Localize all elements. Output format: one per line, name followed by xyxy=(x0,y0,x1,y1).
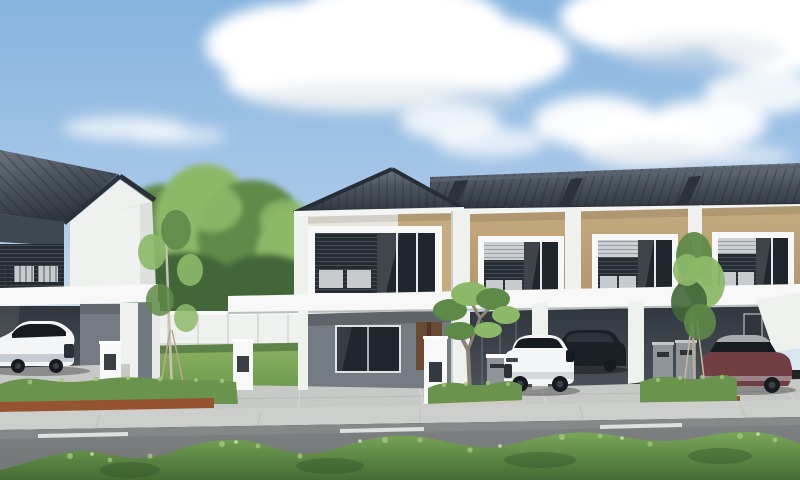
left-upper-windows xyxy=(0,244,66,290)
mailbox-slot xyxy=(104,354,116,370)
left-house xyxy=(0,148,160,396)
unit-a-window-box xyxy=(308,226,442,300)
ac-unit xyxy=(319,270,343,288)
rendered-scene: Row of modern two-storey terrace houses … xyxy=(0,0,800,480)
ac-unit xyxy=(738,272,754,287)
canopy-column xyxy=(628,300,644,384)
mailbox-slot xyxy=(429,362,442,382)
ac-unit xyxy=(347,270,371,288)
front-hedge-left xyxy=(0,376,238,412)
unit-a-window xyxy=(336,326,400,372)
mailbox-slot xyxy=(237,356,249,372)
canopy-column xyxy=(298,310,308,390)
balcony-railing xyxy=(0,262,66,290)
scene-svg: Row of modern two-storey terrace houses … xyxy=(0,0,800,480)
